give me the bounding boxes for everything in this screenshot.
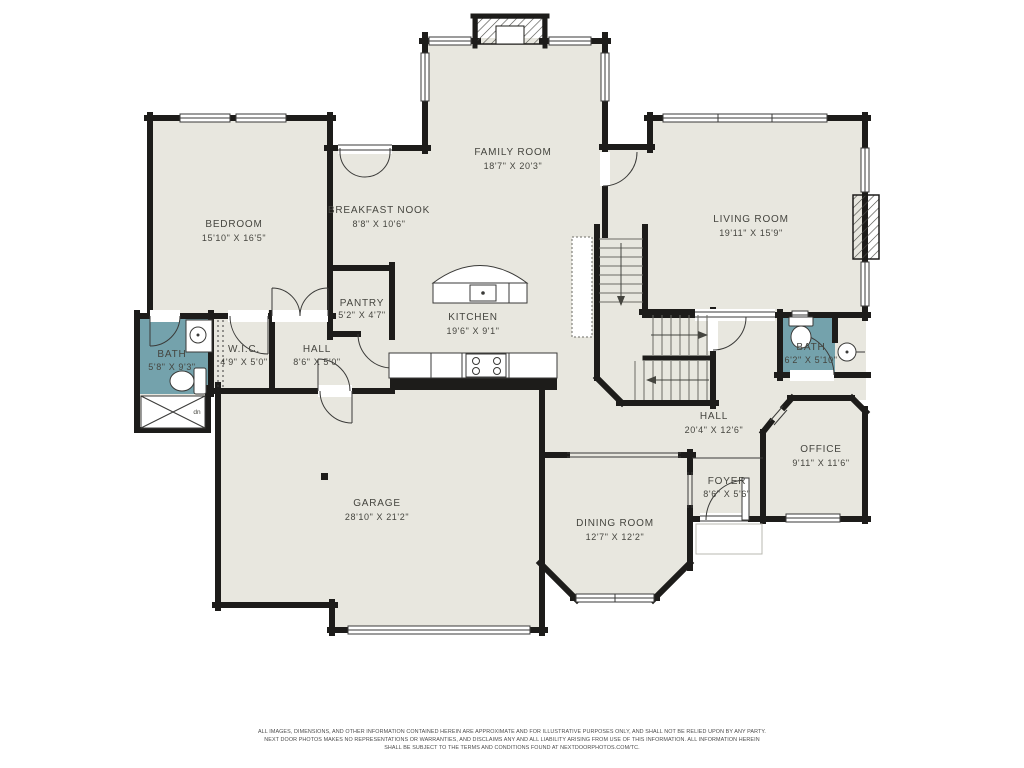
kitchen-counter [389, 353, 557, 378]
svg-text:BATH: BATH [796, 342, 825, 353]
svg-text:FOYER: FOYER [708, 476, 746, 487]
svg-text:LIVING ROOM: LIVING ROOM [713, 214, 788, 225]
svg-text:8'6" X 5'6": 8'6" X 5'6" [703, 489, 750, 499]
svg-text:KITCHEN: KITCHEN [448, 312, 498, 323]
svg-text:20'4" X 12'6": 20'4" X 12'6" [685, 425, 744, 435]
svg-text:9'11" X 11'6": 9'11" X 11'6" [792, 458, 849, 468]
stair-down-note: dn [193, 409, 201, 416]
svg-text:19'11" X 15'9": 19'11" X 15'9" [719, 228, 783, 238]
stair-overhang-outline [572, 237, 592, 337]
svg-text:NEXT DOOR PHOTOS MAKES NO REPR: NEXT DOOR PHOTOS MAKES NO REPRESENTATION… [264, 737, 759, 743]
dining-window [576, 594, 654, 602]
family-bay-window [421, 53, 429, 101]
disclaimer: ALL IMAGES, DIMENSIONS, AND OTHER INFORM… [258, 729, 766, 751]
family-bay-window [429, 37, 471, 45]
garage-post [321, 473, 328, 480]
fireplace [477, 18, 543, 44]
svg-text:GARAGE: GARAGE [353, 498, 401, 509]
svg-text:5'8" X 9'3": 5'8" X 9'3" [148, 362, 195, 372]
floor-areas [137, 38, 866, 630]
svg-text:19'6" X 9'1": 19'6" X 9'1" [446, 326, 499, 336]
family-bay-window [549, 37, 591, 45]
entry-stoop [696, 524, 762, 554]
svg-text:HALL: HALL [303, 344, 331, 355]
window-seat [853, 195, 879, 259]
svg-text:8'6" X 5'0": 8'6" X 5'0" [293, 357, 340, 367]
living-room-window [861, 262, 869, 306]
svg-text:DINING ROOM: DINING ROOM [576, 518, 654, 529]
svg-text:FAMILY ROOM: FAMILY ROOM [474, 147, 551, 158]
svg-text:BATH: BATH [157, 349, 186, 360]
svg-text:5'2" X 4'7": 5'2" X 4'7" [338, 310, 385, 320]
svg-text:BREAKFAST NOOK: BREAKFAST NOOK [328, 205, 430, 216]
svg-text:18'7" X 20'3": 18'7" X 20'3" [484, 161, 543, 171]
svg-text:PANTRY: PANTRY [340, 298, 384, 309]
svg-text:W.I.C.: W.I.C. [228, 344, 260, 355]
svg-text:OFFICE: OFFICE [800, 444, 841, 455]
svg-text:8'8" X 10'6": 8'8" X 10'6" [352, 219, 405, 229]
floorplan-page: FAMILY ROOM18'7" X 20'3" BEDROOM15'10" X… [0, 0, 1024, 768]
floor-plan: FAMILY ROOM18'7" X 20'3" BEDROOM15'10" X… [0, 0, 1024, 768]
svg-text:BEDROOM: BEDROOM [205, 219, 262, 230]
garage-door [348, 626, 530, 634]
svg-text:6'2" X 5'10": 6'2" X 5'10" [784, 355, 837, 365]
toilet-bowl [170, 371, 194, 391]
office-window [786, 514, 840, 522]
svg-text:SHALL BE SUBJECT TO THE TERMS: SHALL BE SUBJECT TO THE TERMS AND CONDIT… [384, 745, 640, 751]
svg-text:HALL: HALL [700, 411, 728, 422]
svg-text:15'10" X 16'5": 15'10" X 16'5" [202, 233, 266, 243]
svg-text:4'9" X 5'0": 4'9" X 5'0" [220, 357, 267, 367]
bedroom-window [180, 114, 230, 122]
svg-text:ALL IMAGES, DIMENSIONS, AND OT: ALL IMAGES, DIMENSIONS, AND OTHER INFORM… [258, 729, 766, 735]
living-room-window [663, 114, 827, 122]
toilet-tank [194, 368, 206, 394]
bedroom-window [236, 114, 286, 122]
family-bay-window [601, 53, 609, 101]
toilet-tank [789, 317, 813, 326]
svg-text:28'10" X 21'2": 28'10" X 21'2" [345, 512, 409, 522]
svg-text:12'7" X 12'2": 12'7" X 12'2" [586, 532, 645, 542]
living-room-window [861, 148, 869, 192]
